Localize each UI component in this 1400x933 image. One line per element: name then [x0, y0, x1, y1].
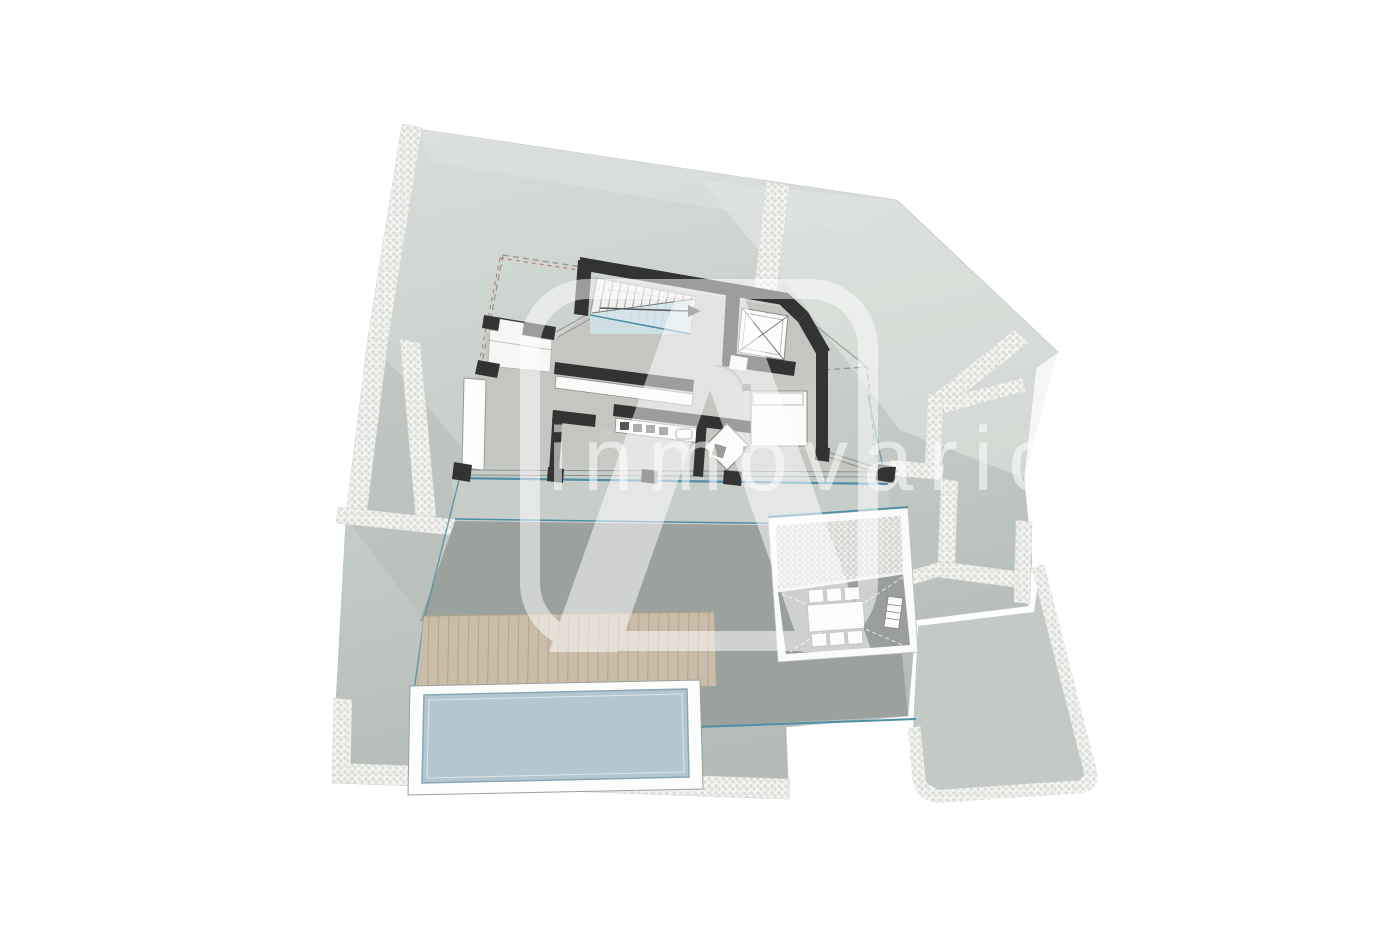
- swimming-pool: [408, 680, 703, 795]
- watermark-text: inmovario: [548, 410, 1073, 510]
- floorplan-svg: inmovario: [0, 0, 1400, 933]
- floorplan-image: inmovario: [0, 0, 1400, 933]
- balcony-strip: [462, 378, 486, 470]
- post: [452, 462, 472, 482]
- pool-water: [422, 689, 689, 783]
- terrain-white-gap: [790, 719, 926, 799]
- gravel-path: [332, 698, 352, 783]
- gravel-path: [1014, 520, 1032, 604]
